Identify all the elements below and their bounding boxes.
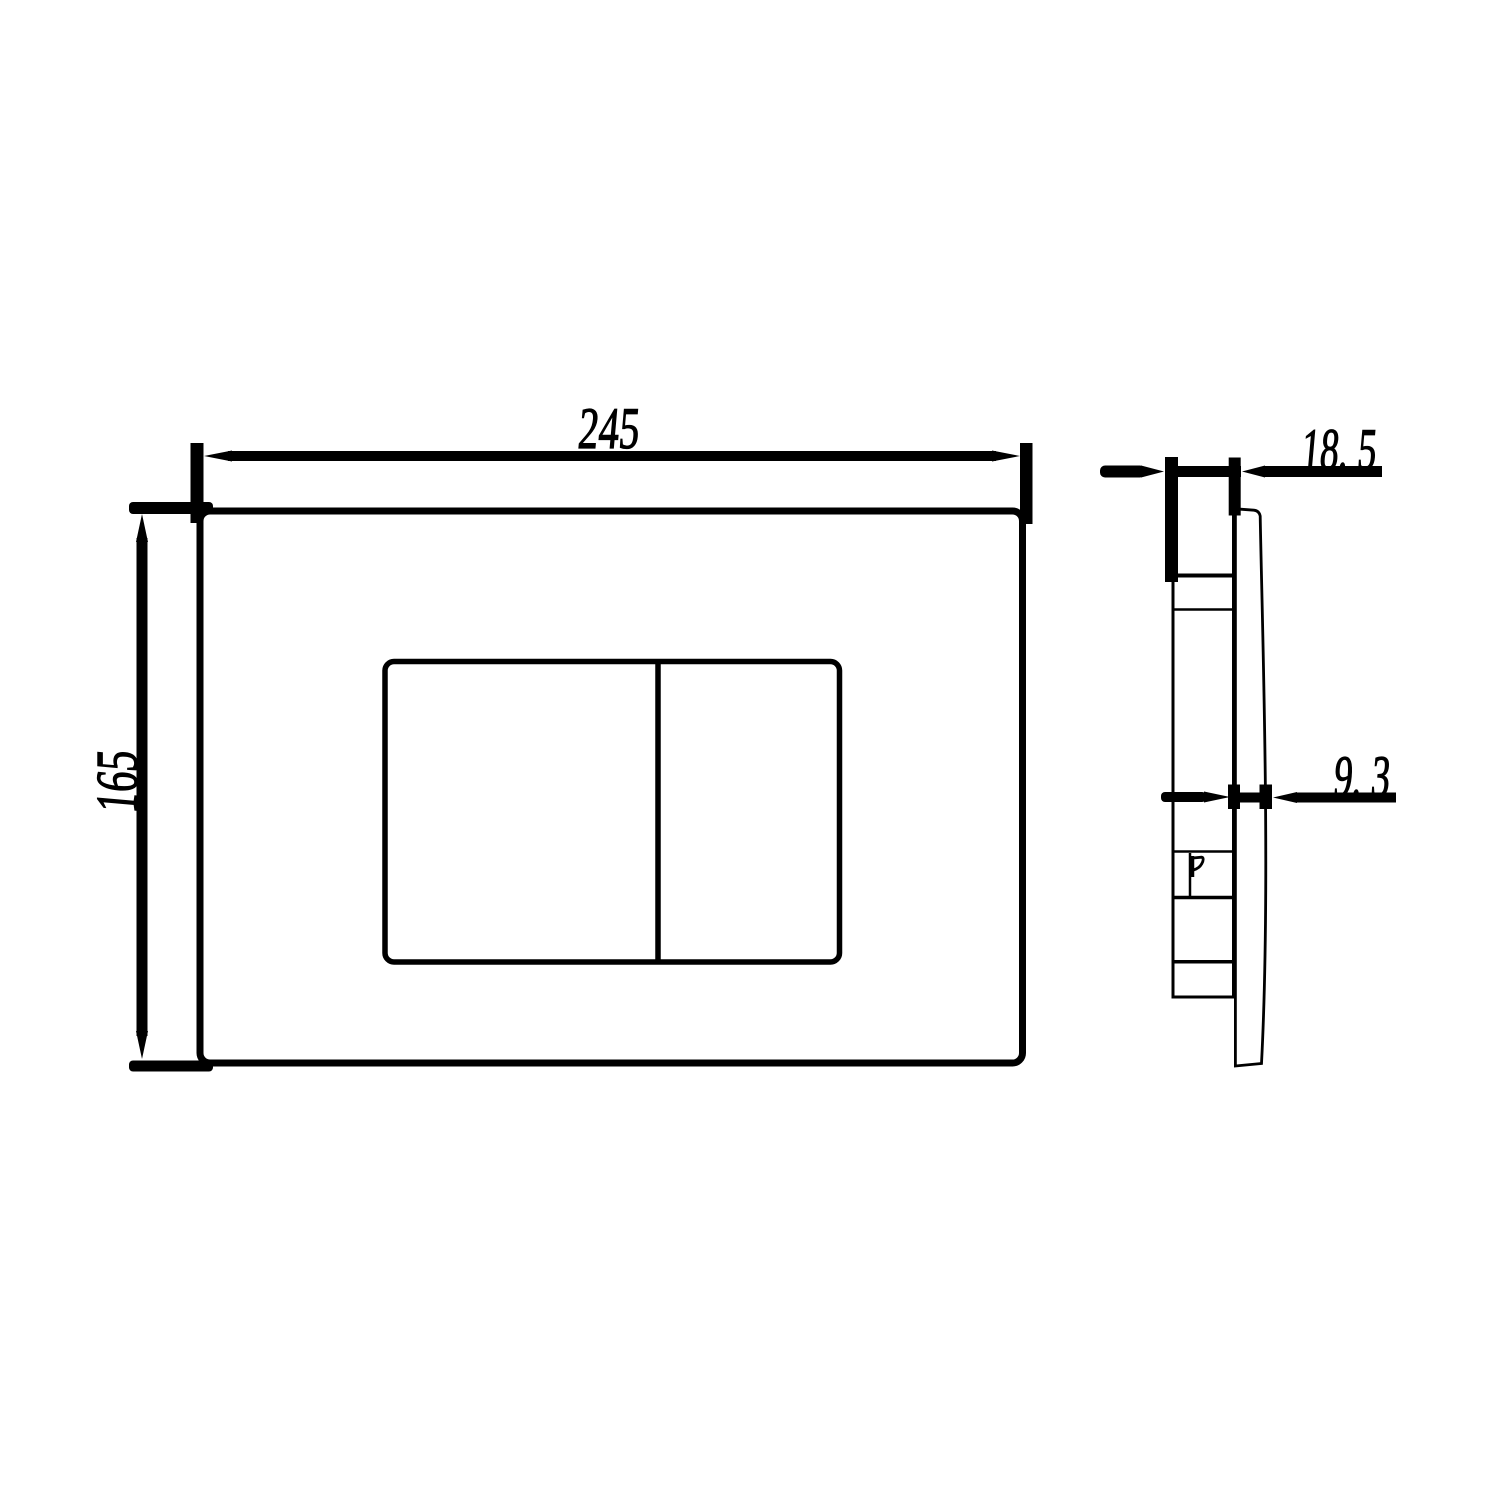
svg-text:165: 165	[84, 747, 150, 815]
svg-text:18. 5: 18. 5	[1299, 416, 1380, 482]
svg-text:9. 3: 9. 3	[1331, 743, 1393, 809]
svg-text:245: 245	[576, 395, 643, 461]
